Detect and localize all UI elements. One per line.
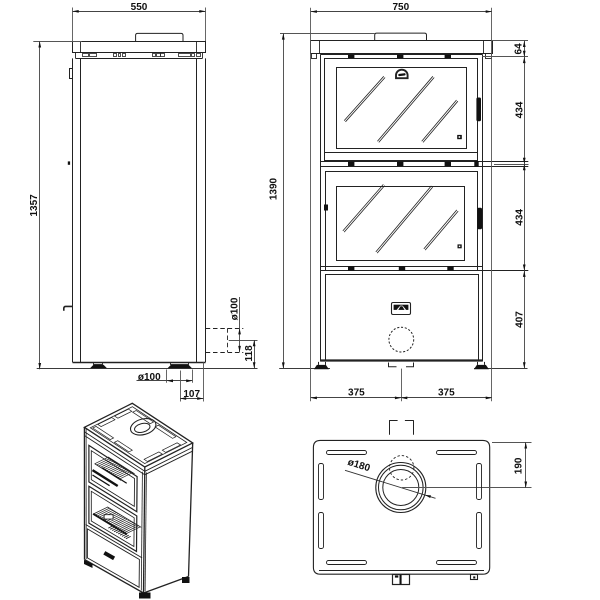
svg-text:1390: 1390 bbox=[268, 177, 279, 200]
svg-text:118: 118 bbox=[244, 345, 255, 362]
svg-text:ø100: ø100 bbox=[138, 372, 161, 383]
svg-text:ø100: ø100 bbox=[229, 297, 240, 320]
svg-text:107: 107 bbox=[183, 389, 200, 400]
svg-text:407: 407 bbox=[514, 311, 525, 328]
svg-text:750: 750 bbox=[392, 2, 409, 13]
svg-text:1357: 1357 bbox=[29, 194, 40, 217]
svg-text:375: 375 bbox=[438, 388, 455, 399]
svg-text:64: 64 bbox=[514, 43, 525, 55]
svg-text:434: 434 bbox=[514, 101, 525, 118]
svg-text:190: 190 bbox=[513, 457, 524, 474]
svg-text:375: 375 bbox=[348, 388, 365, 399]
svg-text:550: 550 bbox=[131, 2, 148, 13]
svg-text:434: 434 bbox=[514, 209, 525, 226]
